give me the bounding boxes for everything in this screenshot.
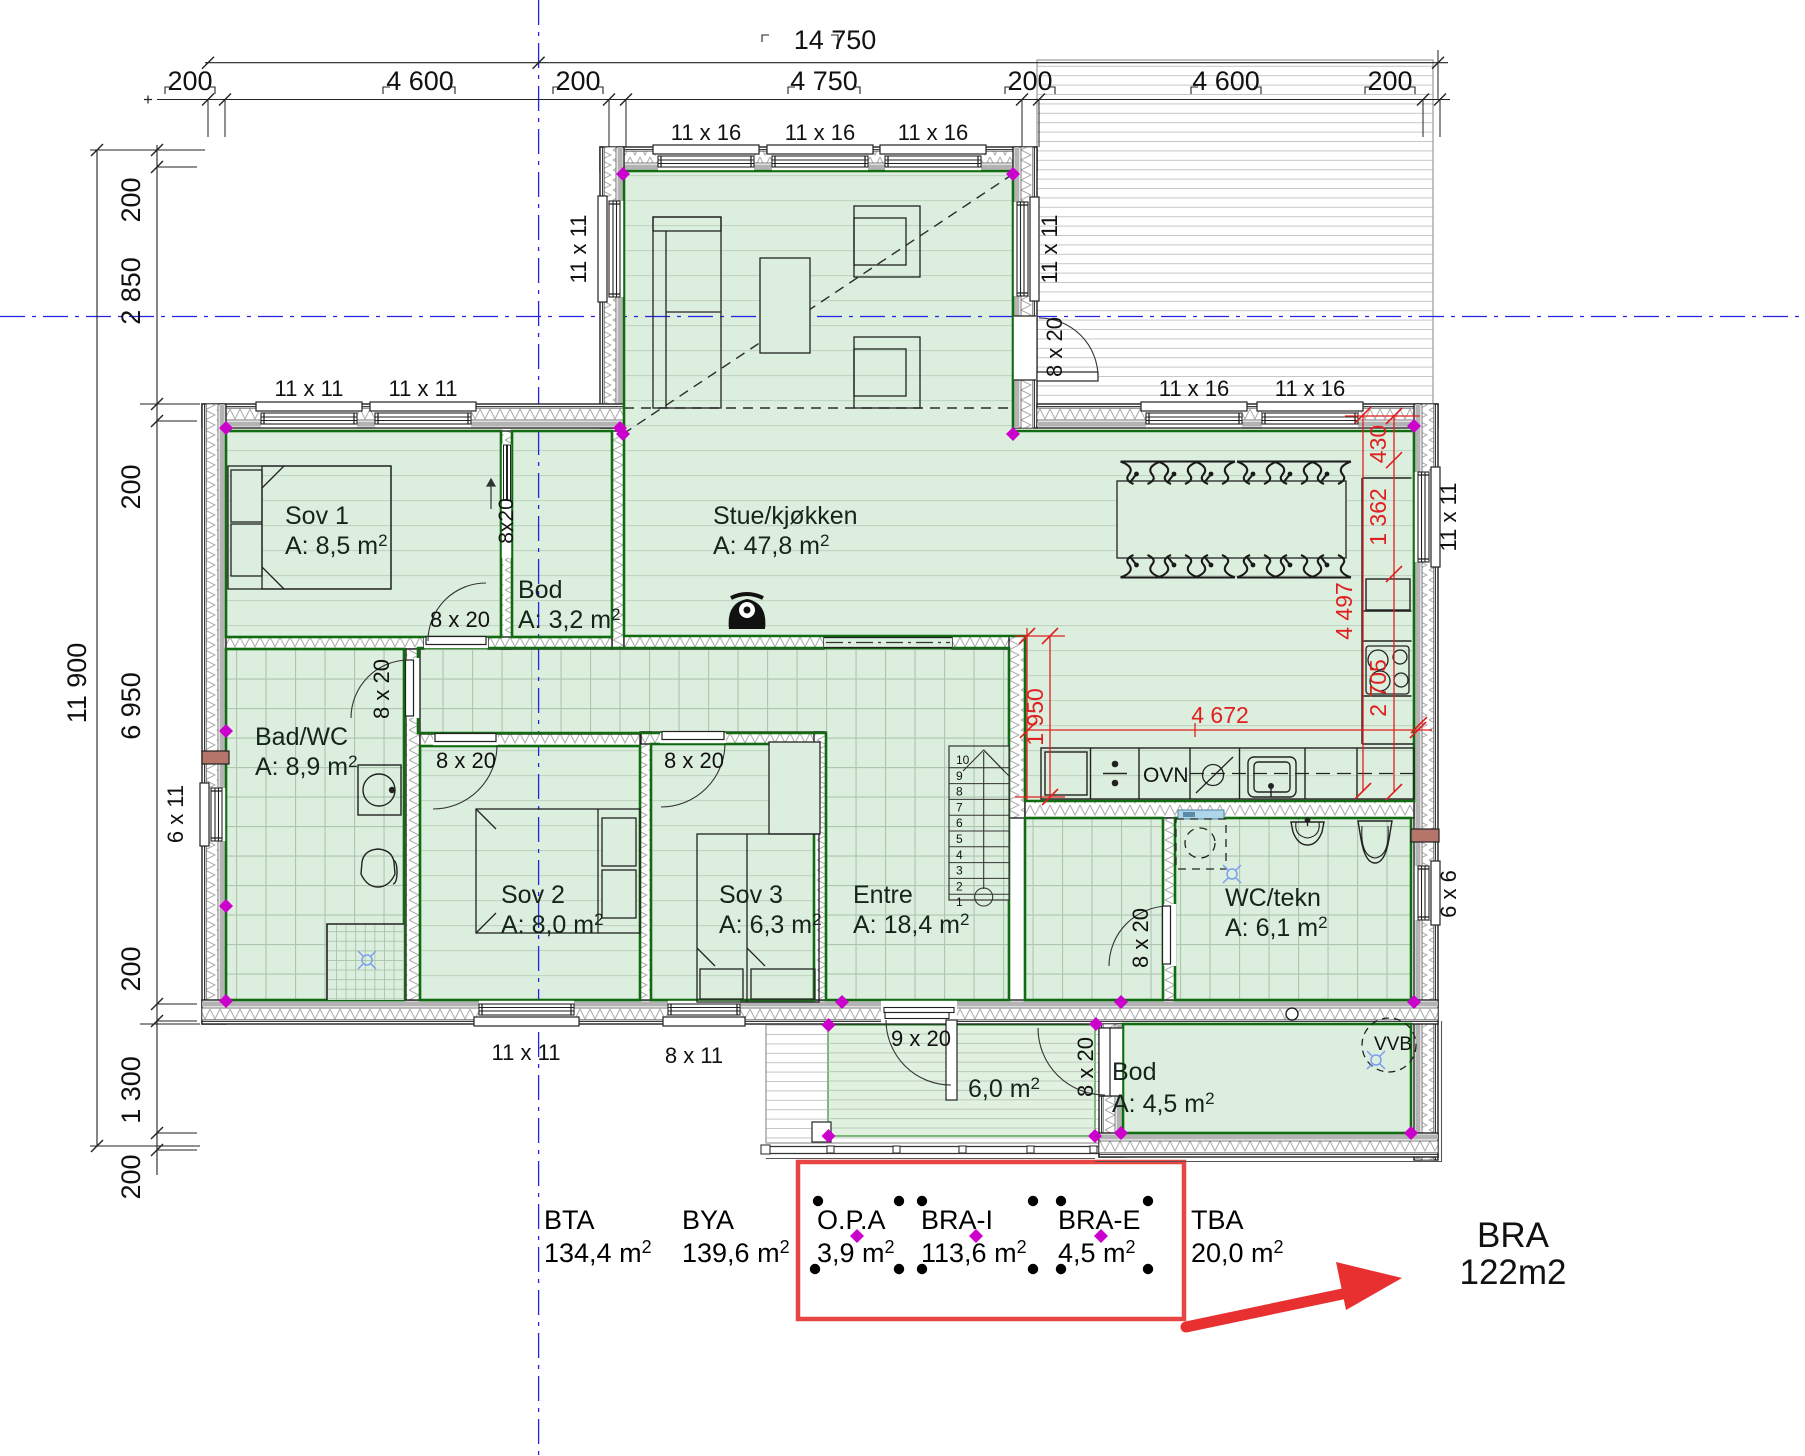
- svg-text:8 x 20: 8 x 20: [430, 607, 490, 632]
- svg-text:A: 18,4 m2: A: 18,4 m2: [853, 910, 969, 939]
- svg-text:11 x 16: 11 x 16: [1159, 376, 1230, 401]
- svg-text:4 497: 4 497: [1331, 582, 1357, 640]
- svg-text:A: 6,1 m2: A: 6,1 m2: [1225, 913, 1328, 942]
- svg-text:1 300: 1 300: [116, 1056, 146, 1124]
- svg-text:11 x 16: 11 x 16: [671, 120, 742, 145]
- svg-text:6 x 6: 6 x 6: [1436, 870, 1461, 918]
- svg-text:A: 8,0 m2: A: 8,0 m2: [501, 910, 604, 939]
- svg-text:Bod: Bod: [518, 576, 562, 604]
- svg-text:A: 6,3 m2: A: 6,3 m2: [719, 910, 822, 939]
- svg-text:1: 1: [956, 895, 963, 909]
- svg-text:11 x 11: 11 x 11: [389, 376, 458, 401]
- svg-text:6: 6: [956, 816, 963, 830]
- svg-text:11 x 11: 11 x 11: [1436, 483, 1461, 552]
- svg-text:Sov 1: Sov 1: [285, 502, 349, 530]
- svg-text:1 950: 1 950: [1022, 688, 1048, 746]
- svg-text:BRA-I: BRA-I: [921, 1205, 993, 1235]
- svg-text:8 x 20: 8 x 20: [664, 748, 724, 773]
- svg-text:8 x 20: 8 x 20: [369, 659, 394, 719]
- svg-text:Sov 3: Sov 3: [719, 881, 783, 909]
- svg-text:9 x 20: 9 x 20: [891, 1026, 951, 1051]
- svg-text:TBA: TBA: [1191, 1205, 1244, 1235]
- svg-text:Bod: Bod: [1112, 1058, 1156, 1086]
- svg-text:11 x 11: 11 x 11: [492, 1040, 561, 1065]
- svg-text:200: 200: [167, 66, 212, 96]
- svg-text:11 x 16: 11 x 16: [785, 120, 856, 145]
- svg-text:Stue/kjøkken: Stue/kjøkken: [713, 502, 858, 530]
- svg-text:8 x 11: 8 x 11: [665, 1043, 723, 1068]
- svg-text:7: 7: [956, 800, 963, 814]
- svg-text:8x20: 8x20: [495, 498, 518, 544]
- svg-text:4: 4: [956, 848, 963, 862]
- svg-text:9: 9: [956, 769, 963, 783]
- svg-text:200: 200: [1367, 66, 1412, 96]
- svg-text:BRA: BRA: [1477, 1216, 1550, 1255]
- svg-text:5: 5: [956, 832, 963, 846]
- svg-text:11 x 16: 11 x 16: [1275, 376, 1346, 401]
- svg-text:134,4 m2: 134,4 m2: [544, 1237, 652, 1268]
- svg-text:4 750: 4 750: [790, 66, 858, 96]
- svg-text:A: 4,5 m2: A: 4,5 m2: [1112, 1089, 1215, 1118]
- svg-text:WC/tekn: WC/tekn: [1225, 884, 1321, 912]
- svg-text:200: 200: [1007, 66, 1052, 96]
- svg-text:10: 10: [956, 753, 970, 767]
- svg-text:200: 200: [116, 177, 146, 222]
- svg-text:4 600: 4 600: [386, 66, 454, 96]
- svg-text:8: 8: [956, 785, 963, 799]
- svg-text:11 x 11: 11 x 11: [1037, 215, 1062, 284]
- svg-text:O.P.A: O.P.A: [817, 1205, 886, 1235]
- svg-text:200: 200: [116, 464, 146, 509]
- svg-text:3,9 m2: 3,9 m2: [817, 1237, 895, 1268]
- svg-text:139,6 m2: 139,6 m2: [682, 1237, 790, 1268]
- svg-text:6 950: 6 950: [116, 672, 146, 740]
- svg-text:8 x 20: 8 x 20: [436, 748, 496, 773]
- svg-text:6 x 11: 6 x 11: [163, 785, 188, 843]
- svg-text:4 672: 4 672: [1191, 702, 1249, 728]
- svg-text:2 705: 2 705: [1365, 659, 1391, 717]
- svg-text:113,6 m2: 113,6 m2: [921, 1237, 1027, 1268]
- svg-text:OVN: OVN: [1143, 764, 1189, 787]
- svg-text:4,5 m2: 4,5 m2: [1058, 1237, 1136, 1268]
- svg-text:6,0 m2: 6,0 m2: [968, 1074, 1040, 1103]
- svg-text:Bad/WC: Bad/WC: [255, 723, 348, 751]
- svg-text:Sov 2: Sov 2: [501, 881, 565, 909]
- svg-text:BTA: BTA: [544, 1205, 595, 1235]
- svg-text:11 x 11: 11 x 11: [566, 215, 591, 284]
- svg-text:8 x 20: 8 x 20: [1042, 317, 1067, 377]
- svg-text:14 750: 14 750: [794, 25, 877, 55]
- svg-text:200: 200: [116, 946, 146, 991]
- svg-text:430: 430: [1365, 425, 1391, 463]
- svg-text:200: 200: [116, 1154, 146, 1199]
- svg-text:11 x 11: 11 x 11: [275, 376, 344, 401]
- svg-text:2 850: 2 850: [116, 257, 146, 325]
- svg-text:20,0 m2: 20,0 m2: [1191, 1237, 1284, 1268]
- svg-text:A: 8,5 m2: A: 8,5 m2: [285, 531, 388, 560]
- svg-text:A: 47,8 m2: A: 47,8 m2: [713, 531, 829, 560]
- svg-text:BRA-E: BRA-E: [1058, 1205, 1141, 1235]
- svg-text:122m2: 122m2: [1459, 1253, 1566, 1292]
- svg-text:Entre: Entre: [853, 881, 913, 909]
- svg-text:200: 200: [555, 66, 600, 96]
- svg-text:8 x 20: 8 x 20: [1128, 908, 1153, 968]
- svg-text:8 x 20: 8 x 20: [1073, 1037, 1098, 1097]
- svg-text:VVB: VVB: [1374, 1034, 1412, 1055]
- svg-text:4 600: 4 600: [1192, 66, 1260, 96]
- svg-text:11 900: 11 900: [62, 643, 92, 724]
- svg-text:BYA: BYA: [682, 1205, 734, 1235]
- svg-text:11 x 16: 11 x 16: [898, 120, 969, 145]
- svg-text:2: 2: [956, 879, 963, 893]
- svg-text:A: 8,9 m2: A: 8,9 m2: [255, 752, 358, 781]
- svg-text:1 362: 1 362: [1365, 488, 1391, 546]
- svg-text:A: 3,2 m2: A: 3,2 m2: [518, 605, 621, 634]
- svg-text:3: 3: [956, 864, 963, 878]
